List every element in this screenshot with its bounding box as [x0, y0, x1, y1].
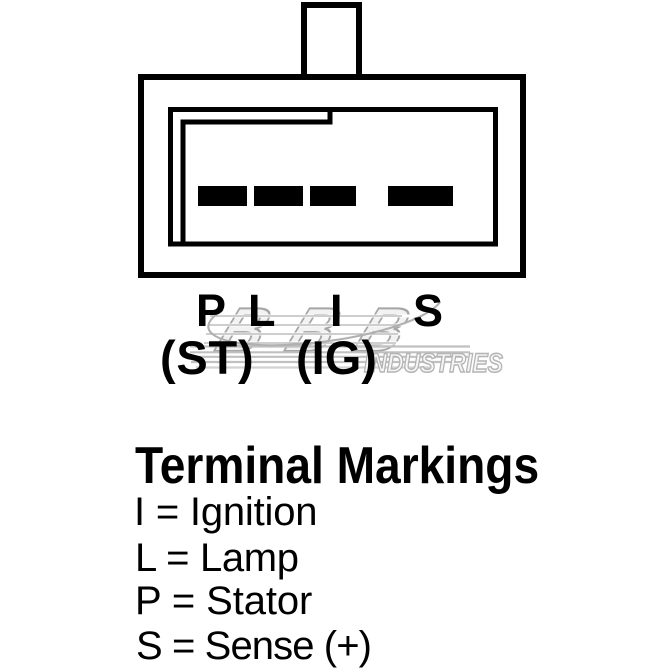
svg-text:INDUSTRIES: INDUSTRIES [364, 348, 503, 378]
